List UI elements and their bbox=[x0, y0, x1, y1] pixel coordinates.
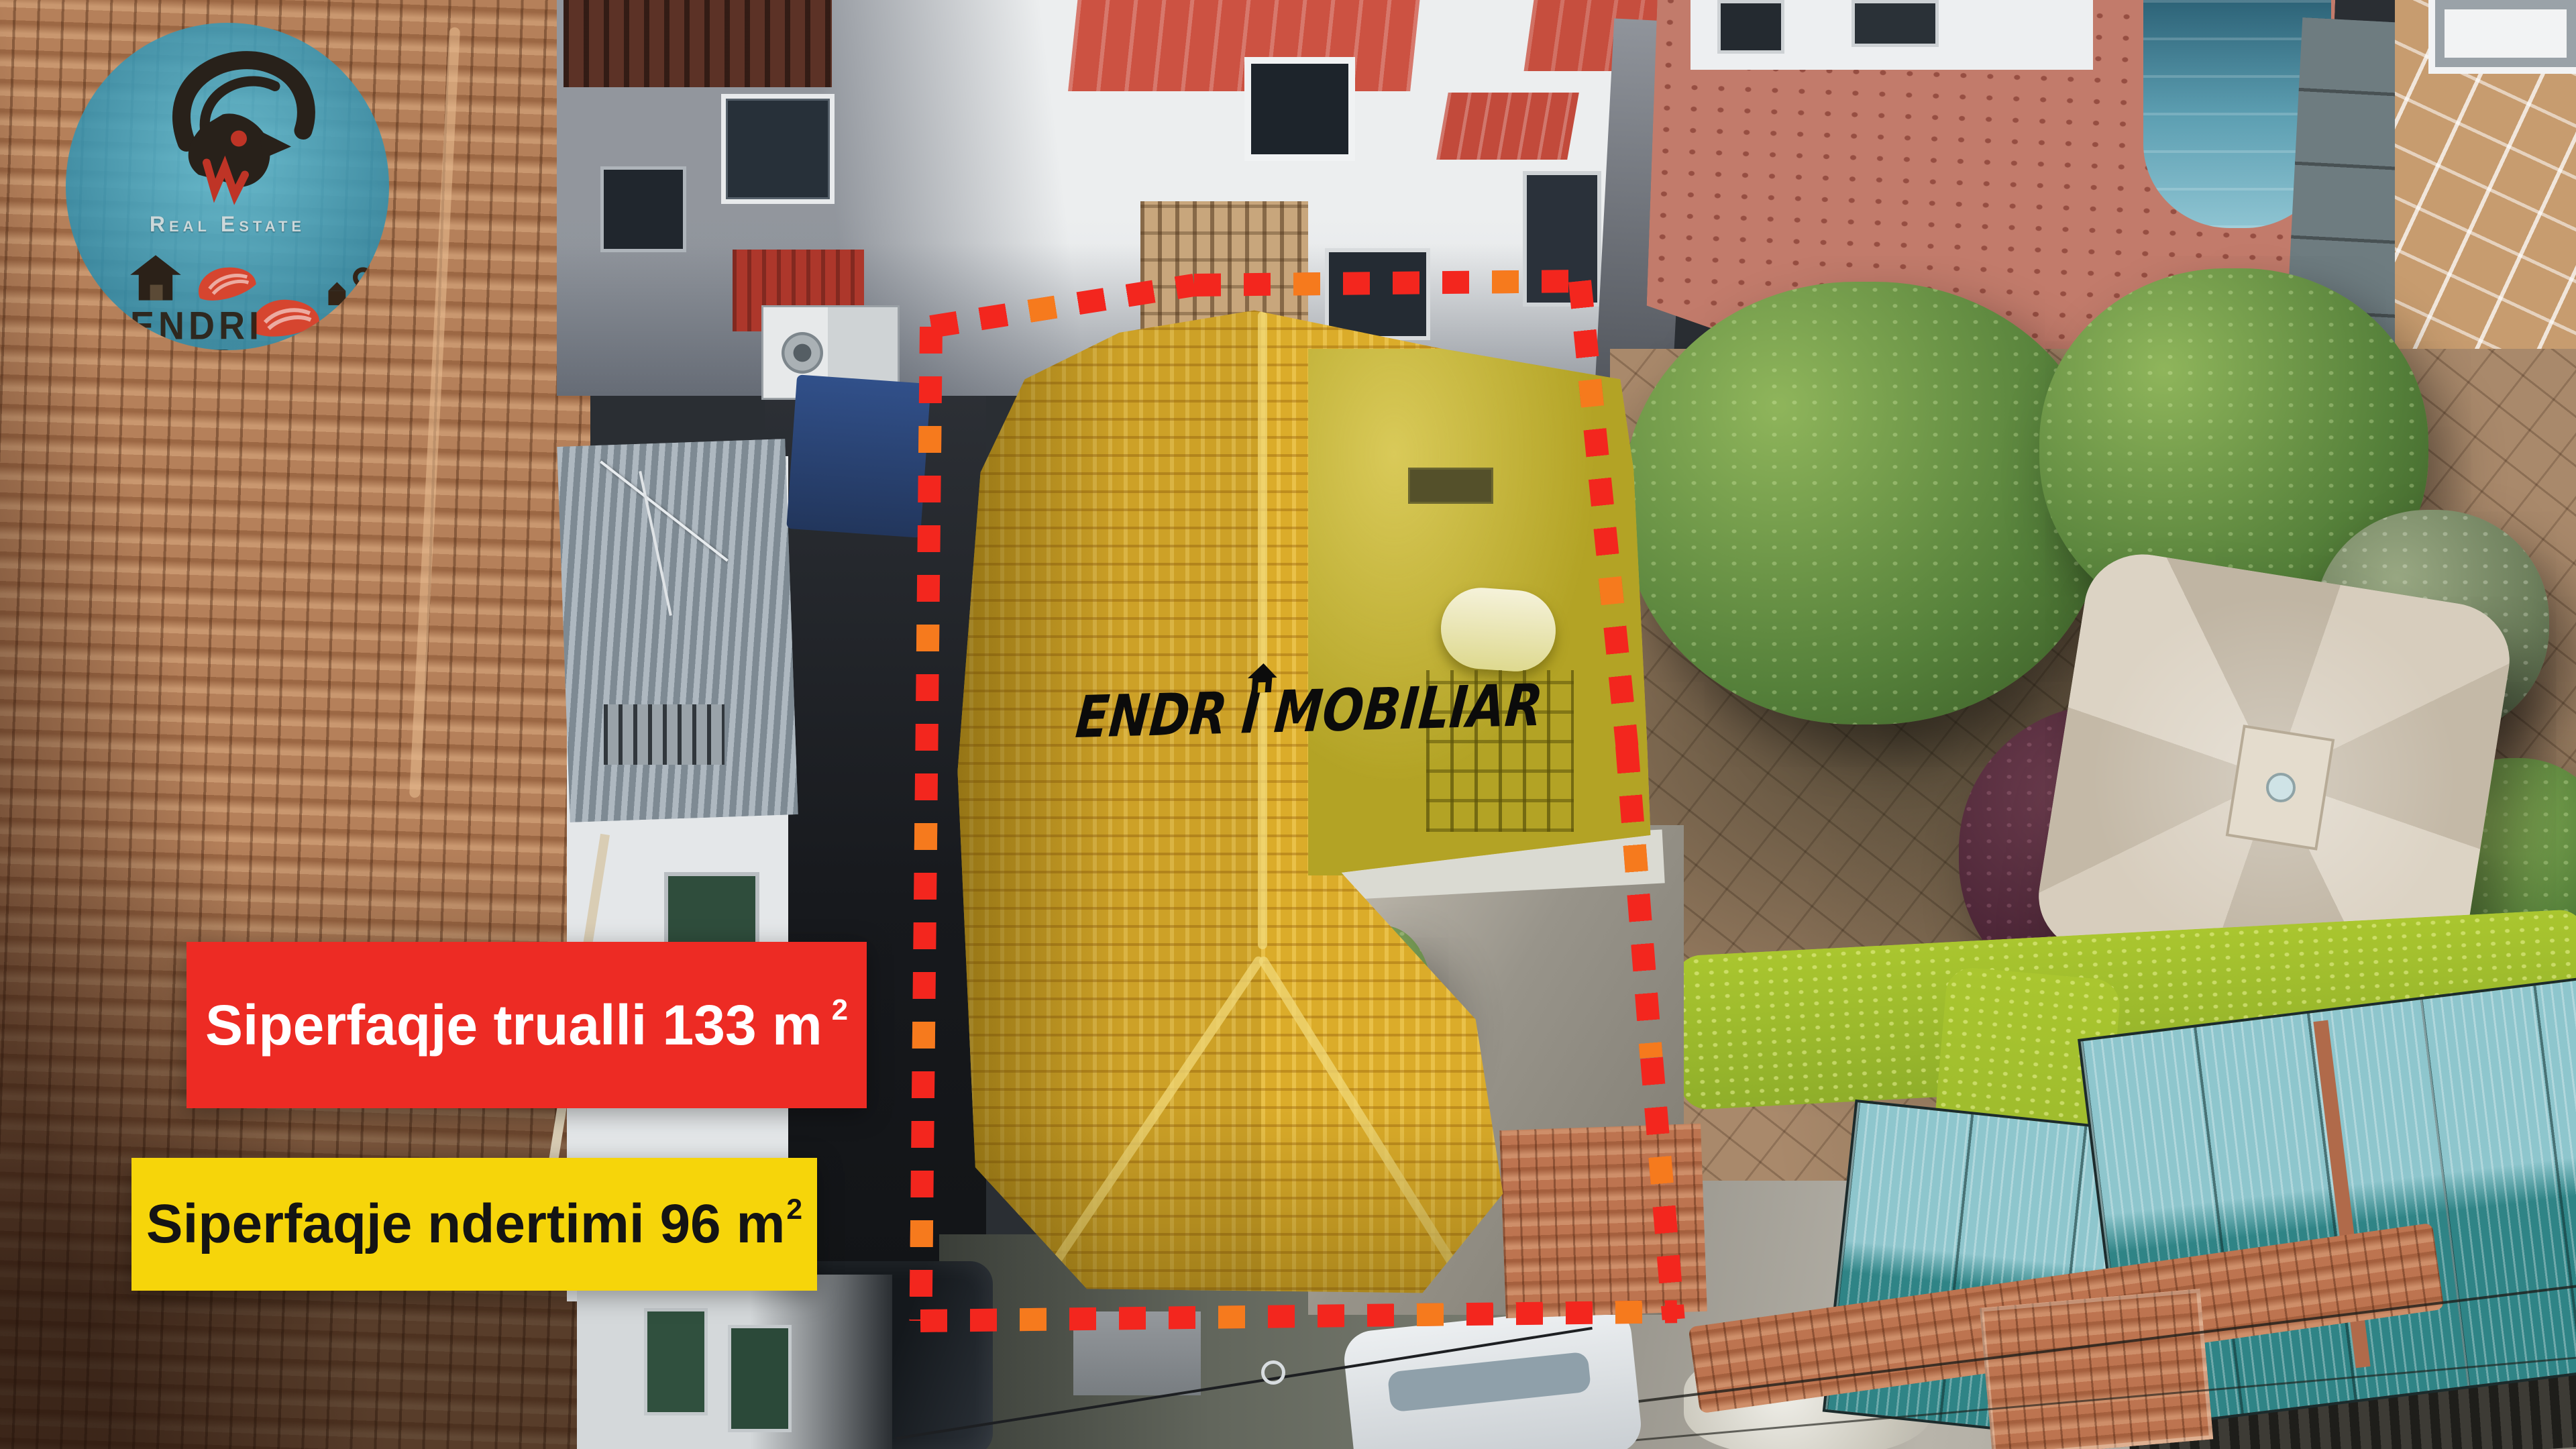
land-area-banner: Siperfaqje trualli 133 m 2 bbox=[186, 942, 867, 1108]
neighbor-shutter-2 bbox=[728, 1325, 792, 1432]
window-barred-2 bbox=[600, 166, 686, 252]
logo-name-line2: IMOBILIAR bbox=[130, 343, 356, 350]
gate-roof bbox=[1980, 1289, 2213, 1449]
corrugated-metal-roof bbox=[557, 439, 798, 822]
blue-dumpster bbox=[786, 374, 931, 537]
umbrella-finial bbox=[2266, 773, 2296, 802]
watermark-part3: MOBILIAR bbox=[1272, 672, 1545, 747]
annex-solar-panel bbox=[1408, 468, 1493, 504]
building-area-value: 96 bbox=[659, 1193, 720, 1256]
yellow-ridge-cap bbox=[1258, 311, 1267, 949]
tree-cluster-left bbox=[1623, 282, 2106, 724]
land-area-sup: 2 bbox=[832, 994, 848, 1027]
building-area-label: Siperfaqje ndertimi bbox=[146, 1193, 645, 1256]
aerial-property-photo: ENDR I MOBILIAR Real Estate bbox=[0, 0, 2576, 1449]
cable-pole-joint bbox=[1261, 1360, 1285, 1385]
alley-balcony-rail bbox=[604, 704, 724, 765]
watermark-house-icon bbox=[1246, 640, 1281, 708]
building-area-banner: Siperfaqje ndertimi 96 m 2 bbox=[131, 1158, 817, 1291]
neighbor-shutter-1 bbox=[644, 1308, 708, 1415]
rooftop-window-a bbox=[1717, 0, 1784, 54]
annex-water-heater bbox=[1438, 585, 1558, 674]
building-area-sup: 2 bbox=[786, 1193, 802, 1226]
logo-tagline: Real Estate bbox=[66, 212, 389, 237]
house-icon bbox=[127, 250, 184, 309]
watermark-part1: ENDR bbox=[1073, 680, 1230, 751]
logo-name-line1: ENDRI bbox=[130, 306, 356, 347]
boundary-dash-top-b bbox=[1194, 270, 1580, 297]
land-area-label: Siperfaqje trualli bbox=[205, 993, 647, 1058]
building-area-unit: m bbox=[736, 1193, 785, 1256]
agency-logo-badge: Real Estate ENDRI IMOBILIAR bbox=[66, 23, 389, 350]
window-barred-1 bbox=[721, 94, 835, 204]
land-area-unit: m bbox=[772, 993, 822, 1058]
ibex-mascot-icon bbox=[126, 38, 327, 205]
window-white-frame bbox=[1244, 57, 1355, 161]
watermark-part2-wrap: I bbox=[1239, 680, 1263, 747]
rooftop-window-b bbox=[1851, 0, 1939, 47]
land-area-value: 133 bbox=[663, 993, 757, 1058]
rusty-balcony bbox=[563, 0, 832, 87]
logo-name-block: ENDRI IMOBILIAR bbox=[130, 307, 356, 350]
far-right-window-frame bbox=[2428, 0, 2576, 74]
red-awning bbox=[1436, 93, 1579, 160]
ac-fan-icon bbox=[782, 332, 823, 374]
watermark-brand: ENDR I MOBILIAR bbox=[1073, 672, 1545, 751]
